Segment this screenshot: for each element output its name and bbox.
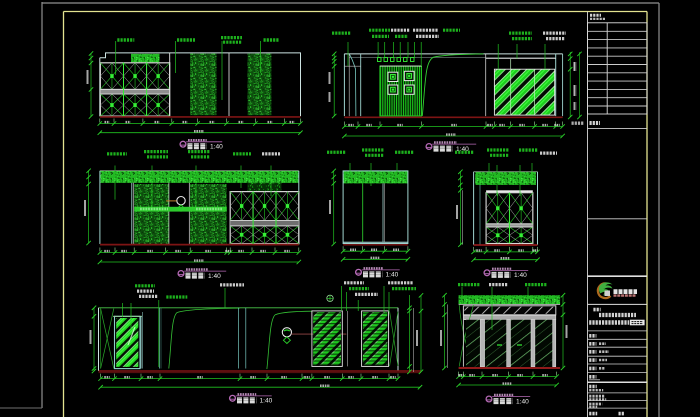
svg-text:1:40: 1:40 [208,273,221,280]
svg-text:1:40: 1:40 [260,398,273,405]
svg-text:1:40: 1:40 [210,144,223,151]
svg-text:1:40: 1:40 [514,272,527,279]
svg-text:1:40: 1:40 [516,398,529,405]
svg-text:1:40: 1:40 [386,272,399,279]
